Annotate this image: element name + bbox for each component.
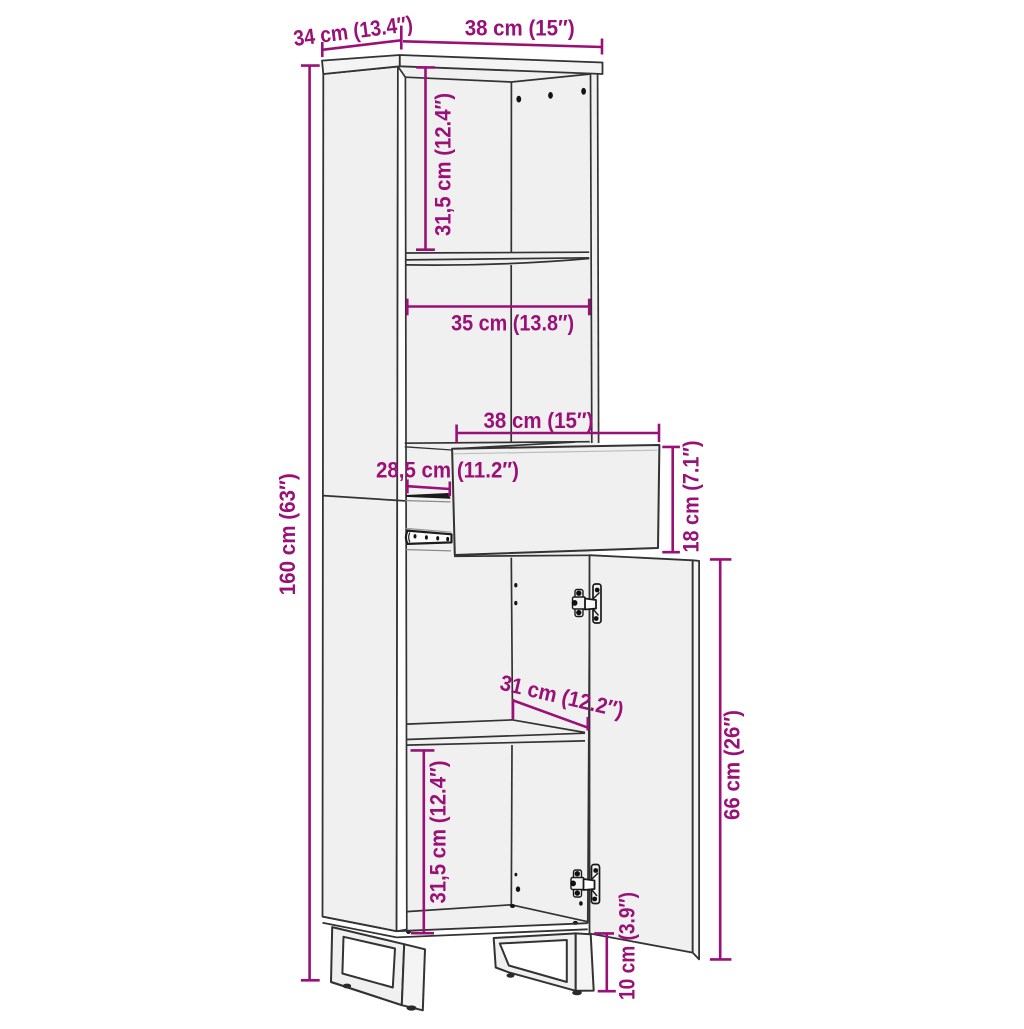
svg-text:160 cm (63″): 160 cm (63″) [275, 473, 300, 595]
svg-text:38 cm (15″): 38 cm (15″) [465, 15, 575, 40]
svg-text:10 cm (3.9″): 10 cm (3.9″) [614, 892, 639, 1000]
svg-text:31,5 cm (12.4″): 31,5 cm (12.4″) [430, 93, 455, 236]
svg-text:18 cm (7.1″): 18 cm (7.1″) [679, 441, 704, 553]
svg-text:66 cm (26″): 66 cm (26″) [719, 710, 744, 820]
svg-text:28,5 cm (11.2″): 28,5 cm (11.2″) [376, 457, 519, 482]
svg-text:38 cm (15″): 38 cm (15″) [484, 408, 594, 433]
svg-text:31,5 cm (12.4″): 31,5 cm (12.4″) [425, 761, 450, 904]
svg-text:35 cm (13.8″): 35 cm (13.8″) [451, 311, 574, 336]
